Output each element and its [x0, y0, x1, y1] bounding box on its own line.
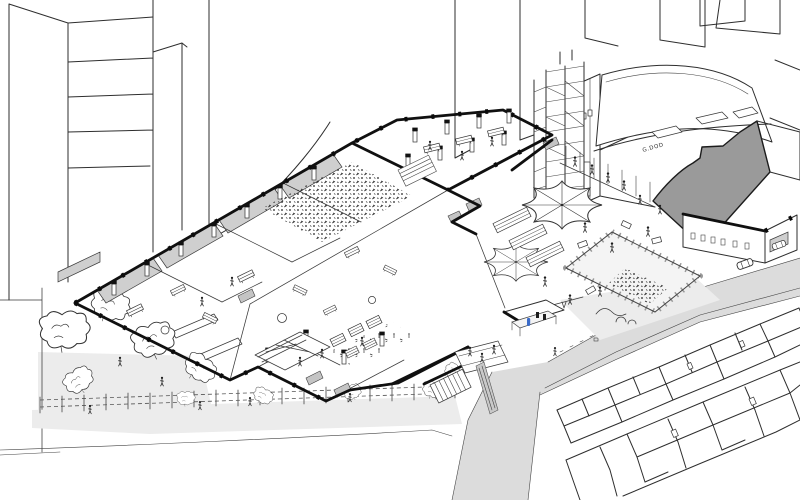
scaffold-tower [534, 50, 584, 200]
tent-1 [522, 181, 602, 229]
tree [39, 311, 90, 353]
cafe-terrace [328, 315, 416, 366]
interior-columns [111, 109, 511, 364]
front-rooms [255, 332, 330, 370]
kiosk [504, 300, 564, 336]
side-street [452, 372, 540, 500]
annex-building [683, 214, 797, 263]
fascia-sign-text: G.DOD [642, 142, 665, 154]
car-1 [736, 258, 753, 270]
performance-crowd [262, 162, 412, 242]
axonometric-illustration: G.DOD [0, 0, 800, 500]
background-city-blocks [9, 0, 800, 300]
screenshot-canvas: G.DOD [0, 0, 800, 500]
kiosk-blue-figure [527, 318, 530, 326]
